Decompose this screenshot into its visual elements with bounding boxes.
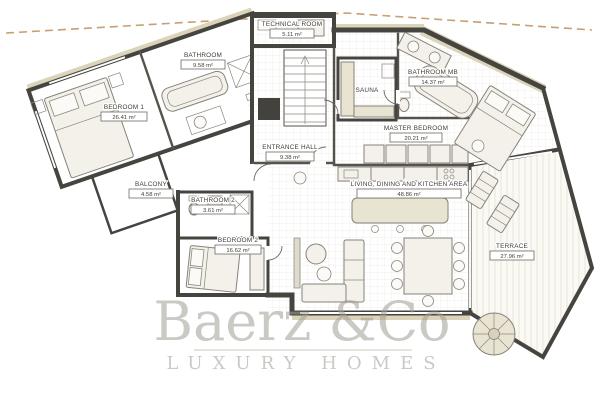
bathtub (160, 69, 230, 113)
sauna-bench (341, 62, 354, 116)
kitchen-island (352, 198, 448, 223)
room-label-sauna: SAUNA (355, 87, 379, 94)
bed-1 (44, 77, 134, 178)
tv-bench (294, 238, 300, 288)
room-label-bathroom-2: BATHROOM 2 (191, 197, 235, 204)
room-label-master-bedroom: MASTER BEDROOM (384, 125, 448, 132)
plant (472, 140, 484, 152)
room-area-bathroom: 9.58 m² (193, 63, 213, 69)
room-label-balcony: BALCONY (135, 181, 167, 188)
room-label-entrance-hall: ENTRANCE HALL (262, 144, 318, 151)
nightstand (108, 73, 123, 88)
room-area-living: 48.86 m² (397, 192, 420, 198)
room-area-bathroom-2: 3.61 m² (203, 208, 223, 214)
round-daybed (473, 313, 515, 355)
kitchen-counter (338, 167, 468, 181)
room-area-bedroom-1: 26.41 m² (112, 115, 135, 121)
sauna-bench (354, 106, 394, 117)
room-area-bathroom-mb: 14.37 m² (421, 80, 444, 86)
room-area-master-bedroom: 20.21 m² (404, 136, 427, 142)
floor-plan-svg: TECHNICAL ROOM 5.11 m² BATHROOM 9.58 m² … (0, 0, 600, 400)
room-area-bedroom-2: 16.62 m² (226, 248, 249, 254)
elevator-shaft (258, 98, 280, 120)
room-label-bathroom-mb: BATHROOM MB (408, 69, 458, 76)
room-label-living: LIVING, DINING AND KITCHEN AREA (351, 181, 468, 188)
room-label-bathroom: BATHROOM (184, 52, 222, 59)
room-label-terrace: TERRACE (496, 243, 528, 250)
window (49, 57, 125, 83)
floor-plan: TECHNICAL ROOM 5.11 m² BATHROOM 9.58 m² … (0, 0, 600, 400)
watermark: Baerz &Co LUXURY HOMES (153, 290, 450, 374)
armchair (306, 244, 326, 264)
room-area-entrance-hall: 9.38 m² (280, 155, 300, 161)
room-area-terrace: 27.96 m² (500, 254, 523, 260)
wardrobe-row (364, 145, 468, 163)
room-label-technical-room: TECHNICAL ROOM (262, 21, 322, 28)
coffee-table (317, 267, 331, 281)
watermark-tagline: LUXURY HOMES (166, 353, 445, 374)
room-area-balcony: 4.58 m² (141, 192, 161, 198)
room-label-bedroom-1: BEDROOM 1 (104, 104, 144, 111)
staircase (284, 50, 326, 126)
room-label-bedroom-2: BEDROOM 2 (218, 237, 258, 244)
plant (294, 172, 306, 184)
room-area-technical-room: 5.11 m² (282, 32, 302, 38)
watermark-brand: Baerz &Co (153, 290, 450, 353)
